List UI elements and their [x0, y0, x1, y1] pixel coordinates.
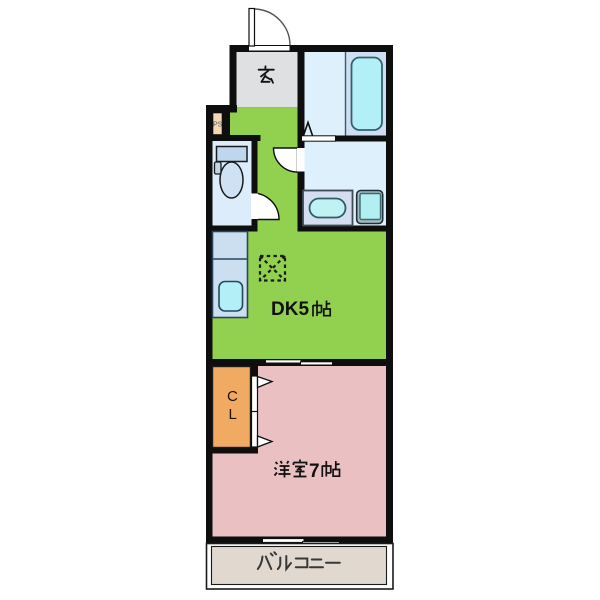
svg-text:C: C [227, 388, 238, 405]
svg-text:PS: PS [213, 121, 223, 128]
svg-text:L: L [229, 406, 237, 423]
svg-text:DK5: DK5 [271, 299, 309, 320]
svg-text:7: 7 [309, 461, 320, 482]
